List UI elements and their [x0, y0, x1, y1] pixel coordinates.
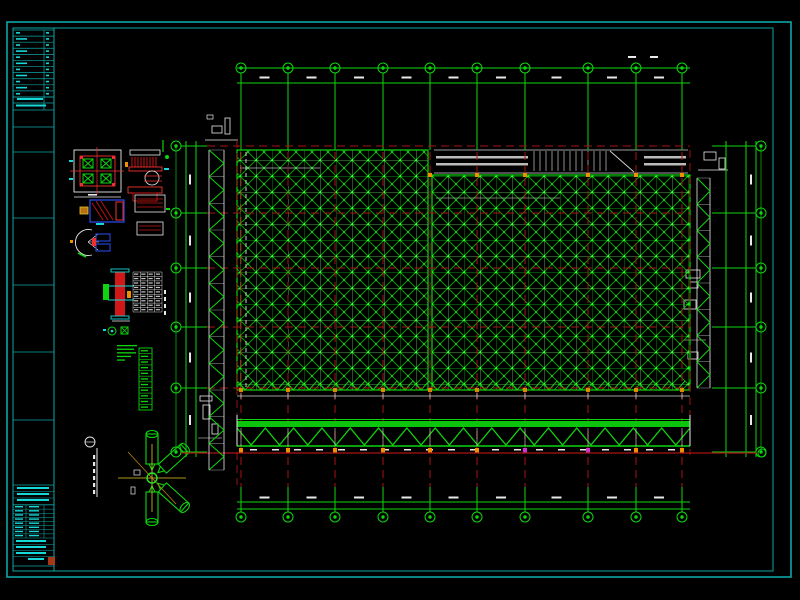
general-notes-block: [117, 345, 137, 361]
node-plan-detail: [69, 147, 124, 197]
cad-canvas[interactable]: [0, 0, 800, 600]
bearing-detail-top-right: [698, 152, 728, 170]
plug-weld-detail: [80, 200, 124, 225]
bearing-detail-top-left: [205, 115, 238, 140]
member-legend-strip: [139, 348, 152, 410]
support-column-detail: [103, 269, 134, 321]
material-schedule-table: [133, 272, 162, 312]
drawing-sheet: [0, 0, 800, 600]
flange-end-detail: [70, 230, 110, 258]
vertical-text-marks: [164, 290, 166, 315]
bottom-truss-elevation: [181, 393, 766, 457]
space-frame-plan: [237, 150, 690, 390]
bearing-section-detail: [125, 140, 169, 201]
legend-symbols: [103, 327, 128, 335]
ball-node-fan-detail: [118, 431, 191, 526]
stair-band: [434, 150, 688, 173]
title-strip: [13, 28, 55, 571]
detail-callout-label: [85, 437, 97, 497]
